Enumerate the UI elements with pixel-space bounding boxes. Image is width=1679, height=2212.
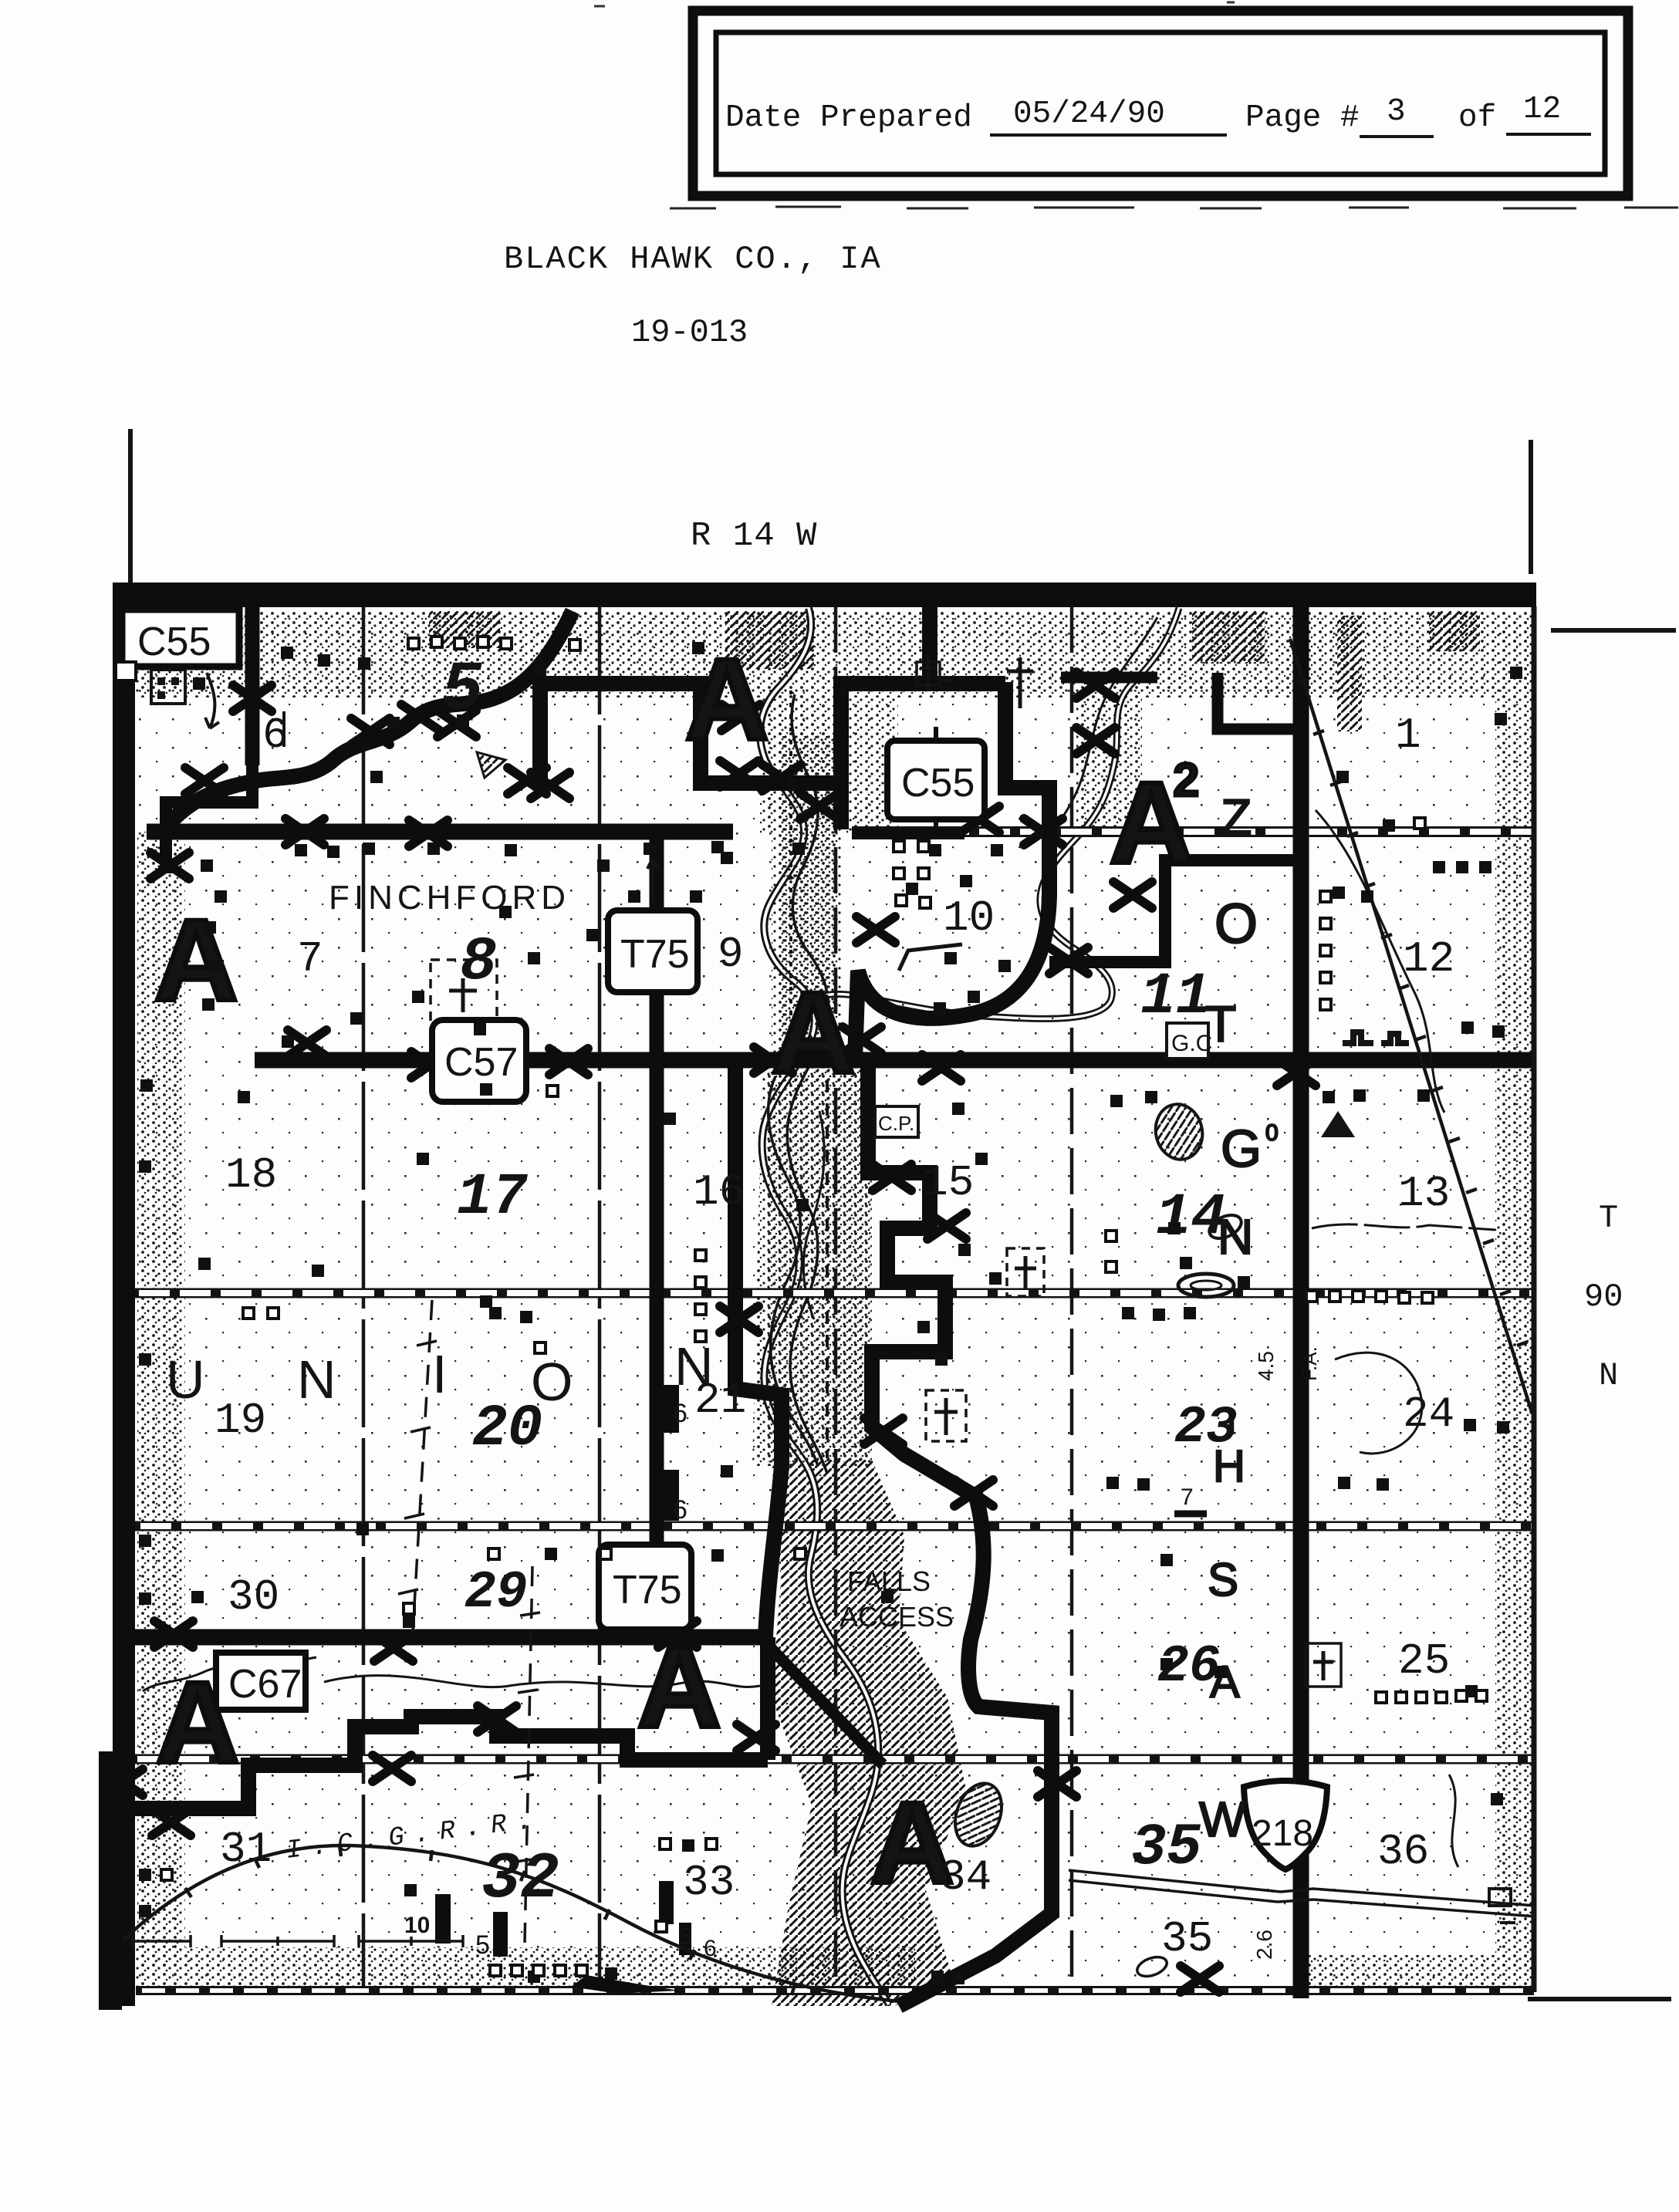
svg-text:7: 7 — [1181, 1484, 1194, 1510]
svg-text:A: A — [637, 1622, 721, 1751]
svg-text:G: G — [1221, 1120, 1262, 1178]
svg-text:24: 24 — [1403, 1390, 1454, 1439]
svg-text:34: 34 — [940, 1852, 992, 1902]
svg-text:I: I — [432, 1344, 447, 1404]
svg-text:U: U — [166, 1349, 205, 1410]
svg-text:A: A — [156, 1657, 239, 1787]
svg-text:W: W — [1199, 1792, 1246, 1847]
svg-text:S: S — [1208, 1554, 1238, 1606]
svg-text:6: 6 — [704, 1936, 717, 1961]
svg-text:Page #: Page # — [1245, 100, 1360, 136]
svg-text:11: 11 — [1140, 964, 1211, 1030]
svg-text:6: 6 — [673, 1399, 687, 1428]
svg-text:23: 23 — [1174, 1398, 1238, 1457]
svg-text:18: 18 — [225, 1150, 277, 1200]
svg-text:2.6: 2.6 — [1252, 1930, 1276, 1960]
svg-text:3: 3 — [1387, 94, 1406, 130]
svg-text:32: 32 — [481, 1843, 559, 1917]
svg-text:29: 29 — [465, 1563, 528, 1623]
svg-text:ACCESS: ACCESS — [839, 1601, 954, 1633]
svg-text:35: 35 — [1161, 1914, 1213, 1964]
svg-text:0: 0 — [1265, 1120, 1279, 1146]
svg-text:12: 12 — [1403, 934, 1454, 984]
svg-text:16: 16 — [693, 1167, 745, 1217]
svg-text:F.A.: F.A. — [1298, 1346, 1321, 1381]
svg-text:25: 25 — [1398, 1636, 1450, 1686]
svg-text:10: 10 — [404, 1913, 430, 1938]
svg-text:5: 5 — [475, 1930, 490, 1960]
svg-text:36: 36 — [1377, 1827, 1429, 1876]
svg-text:C55: C55 — [901, 761, 975, 805]
svg-text:21: 21 — [694, 1376, 746, 1425]
svg-text:10: 10 — [943, 893, 995, 943]
svg-text:N: N — [297, 1349, 336, 1410]
svg-text:T75: T75 — [613, 1568, 682, 1613]
svg-text:5: 5 — [679, 1924, 692, 1950]
svg-text:19: 19 — [215, 1396, 266, 1445]
svg-text:Date Prepared: Date Prepared — [725, 100, 972, 136]
svg-text:FINCHFORD: FINCHFORD — [329, 879, 570, 917]
svg-text:8: 8 — [460, 927, 497, 998]
svg-text:Z: Z — [1221, 789, 1252, 846]
svg-text:15: 15 — [922, 1158, 974, 1207]
svg-text:20: 20 — [472, 1396, 542, 1462]
svg-text:N: N — [1599, 1357, 1618, 1394]
svg-text:1: 1 — [1395, 711, 1421, 760]
svg-text:14: 14 — [1156, 1184, 1226, 1251]
svg-text:19-013: 19-013 — [631, 314, 748, 351]
svg-text:31: 31 — [220, 1825, 272, 1874]
svg-text:O: O — [1214, 893, 1258, 955]
svg-text:BLACK HAWK CO., IA: BLACK HAWK CO., IA — [504, 241, 882, 278]
svg-text:C57: C57 — [444, 1040, 518, 1085]
svg-text:2: 2 — [1173, 754, 1199, 807]
svg-text:17: 17 — [457, 1164, 529, 1231]
svg-text:T75: T75 — [620, 932, 690, 977]
svg-text:13: 13 — [1398, 1169, 1450, 1218]
svg-text:9: 9 — [718, 930, 744, 979]
svg-text:of: of — [1458, 100, 1496, 136]
svg-text:4.5: 4.5 — [1254, 1351, 1278, 1381]
svg-text:7: 7 — [297, 934, 323, 984]
svg-text:90: 90 — [1584, 1278, 1623, 1315]
svg-text:30: 30 — [228, 1572, 279, 1622]
svg-text:A: A — [772, 968, 855, 1097]
svg-text:T: T — [1599, 1200, 1618, 1237]
svg-text:35: 35 — [1131, 1815, 1201, 1881]
svg-text:218: 218 — [1252, 1813, 1313, 1854]
svg-text:6: 6 — [673, 1495, 687, 1525]
svg-text:05/24/90: 05/24/90 — [1013, 96, 1165, 132]
svg-text:33: 33 — [683, 1858, 735, 1907]
svg-text:C55: C55 — [137, 620, 211, 664]
svg-text:A: A — [154, 895, 238, 1025]
svg-text:12: 12 — [1523, 92, 1561, 127]
svg-text:C.P.: C.P. — [878, 1112, 914, 1135]
svg-text:R 14 W: R 14 W — [691, 517, 817, 556]
